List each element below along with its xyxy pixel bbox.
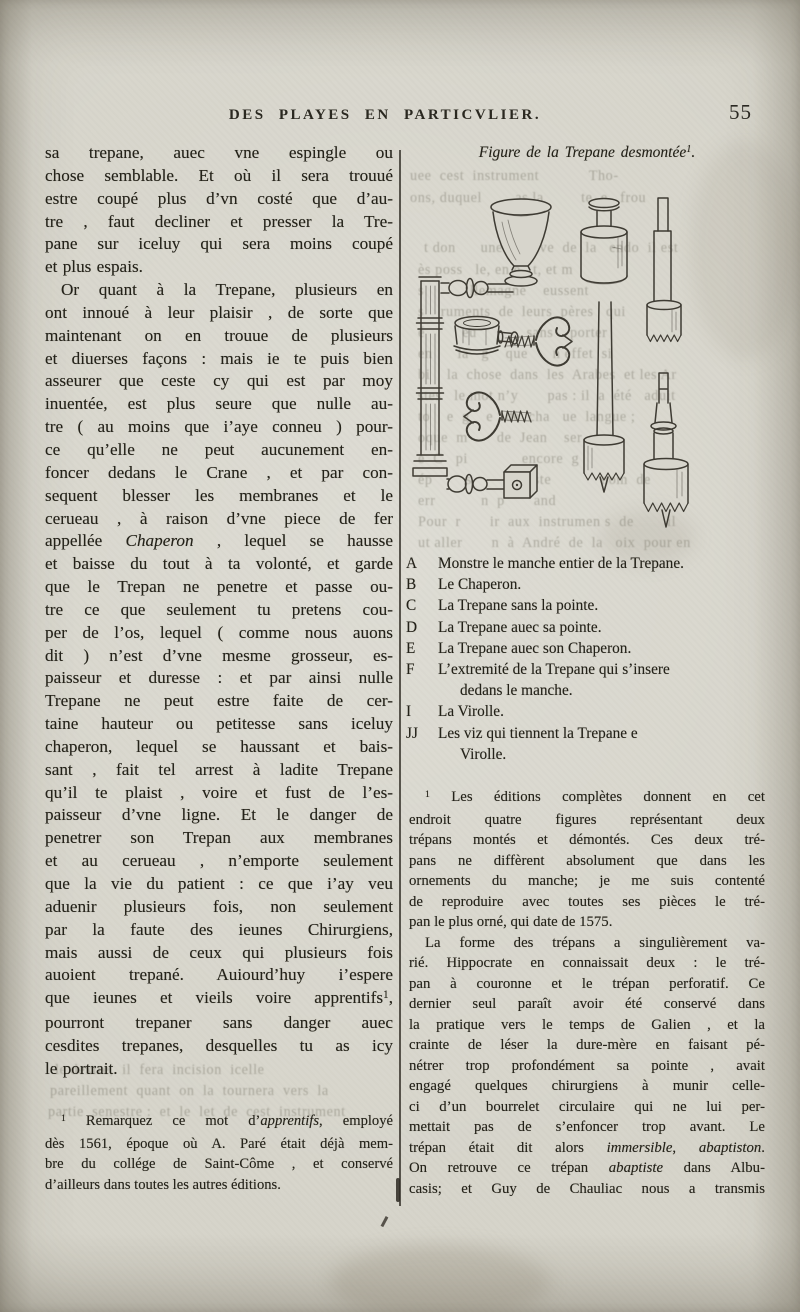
ink-mark bbox=[381, 1216, 388, 1227]
footnote-line: d’ailleurs dans toutes les autres éditio… bbox=[45, 1175, 393, 1196]
text-line: sequent blesser les membranes et le bbox=[45, 485, 393, 508]
legend-key: A bbox=[406, 553, 438, 574]
legend-item: F L’extremité de la Trepane qui s’insere… bbox=[406, 659, 768, 701]
figure-handle-knob bbox=[491, 199, 551, 286]
legend-key: JJ bbox=[406, 723, 438, 765]
text-line: pane sur iceluy qui sera moins coupé bbox=[45, 233, 393, 256]
text-line: chaperon, lequel se haussant et bais- bbox=[45, 736, 393, 759]
figure-trepan-with-chaperon bbox=[644, 373, 688, 527]
paper-stain bbox=[330, 1245, 550, 1312]
footnote-line: ci d’un bourrelet circulaire qui ne lui … bbox=[409, 1097, 765, 1118]
figure-crank-top-arm bbox=[441, 279, 513, 298]
text-line: ont innoué à leur plaisir , de sorte que bbox=[45, 302, 393, 325]
footnote-line: dès 1561, époque où A. Paré était déjà m… bbox=[45, 1134, 393, 1155]
footnote-line: pans ne diffèrent absolument que dans le… bbox=[409, 851, 765, 872]
legend-key: D bbox=[406, 617, 438, 638]
left-footnote: 1 Remarquez ce mot d’apprentifs, employé… bbox=[45, 1111, 393, 1195]
text-line: paisseur et duresse : et par ainsi nulle bbox=[45, 667, 393, 690]
legend-item: E La Trepane auec son Chaperon. bbox=[406, 638, 768, 659]
legend-item: JJ Les viz qui tiennent la Trepane e Vir… bbox=[406, 723, 768, 765]
text-line: aduenir plusieurs fois, non seulement bbox=[45, 896, 393, 919]
legend-key: F bbox=[406, 659, 438, 701]
figure-crank-bottom-arm bbox=[447, 475, 504, 494]
ink-blot bbox=[396, 1178, 400, 1202]
figure-screw-viz-2 bbox=[464, 392, 531, 440]
legend-item: A Monstre le manche entier de la Trepane… bbox=[406, 553, 768, 574]
text-line: tre ( au moins que i’aye conneu ) pour- bbox=[45, 416, 393, 439]
legend-text: La Virolle. bbox=[438, 701, 768, 722]
footnote-line: bre du collége de Saint-Côme , et conser… bbox=[45, 1154, 393, 1175]
legend-key: E bbox=[406, 638, 438, 659]
trepan-engraving bbox=[400, 168, 770, 548]
legend-item: B Le Chaperon. bbox=[406, 574, 768, 595]
text-line: que ieunes et vieils voire apprentifs1, bbox=[45, 987, 393, 1012]
footnote-line: endroit quatre figures représentant deux bbox=[409, 810, 765, 831]
legend-key: I bbox=[406, 701, 438, 722]
figure-trepan-with-point bbox=[584, 302, 624, 492]
text-line: auoient trepané. Auiourd’huy i’espere bbox=[45, 964, 393, 987]
legend-text: La Trepane auec son Chaperon. bbox=[438, 638, 768, 659]
legend-text: Les viz qui tiennent la Trepane e Viroll… bbox=[438, 723, 768, 765]
text-line: cerueau , à raison d’vne piece de fer bbox=[45, 508, 393, 531]
legend-key: C bbox=[406, 595, 438, 616]
text-line: paisseur d’vne ligne. Et le danger de bbox=[45, 804, 393, 827]
figure-socket-box bbox=[504, 465, 537, 498]
caption-footnote-ref: 1 bbox=[686, 144, 691, 155]
text-line: mais aussi de ceux qui plusieurs fois bbox=[45, 942, 393, 965]
right-footnote: 1 Les éditions complètes donnent en cete… bbox=[409, 787, 765, 1199]
text-line: et baisse du tout à ta volonté, et garde bbox=[45, 553, 393, 576]
footnote-line: 1 Les éditions complètes donnent en cet bbox=[409, 787, 765, 810]
text-line: le portrait. bbox=[45, 1058, 393, 1081]
legend-item: I La Virolle. bbox=[406, 701, 768, 722]
footnote-line: nétrer trop profondément sa pointe , ava… bbox=[409, 1056, 765, 1077]
legend-key: B bbox=[406, 574, 438, 595]
text-line: penetrer son Trepan aux membranes bbox=[45, 827, 393, 850]
running-header: DES PLAYES EN PARTICVLIER. bbox=[45, 107, 725, 124]
text-line: estre coupé plus d’vn costé que d’au- bbox=[45, 188, 393, 211]
legend-text: Monstre le manche entier de la Trepane. bbox=[438, 553, 768, 574]
legend-text: La Trepane sans la pointe. bbox=[438, 595, 768, 616]
legend-text: Le Chaperon. bbox=[438, 574, 768, 595]
text-line: appellée Chaperon , lequel se hausse bbox=[45, 530, 393, 553]
caption-period: . bbox=[691, 144, 695, 161]
text-line: foncer dedans le Crane , et par con- bbox=[45, 462, 393, 485]
footnote-line: dernier seul paraît avoir été conservé d… bbox=[409, 994, 765, 1015]
legend-item: C La Trepane sans la pointe. bbox=[406, 595, 768, 616]
left-column-text: sa trepane, auec vne espingle ouchose se… bbox=[45, 142, 393, 1081]
text-line: Or quant à la Trepane, plusieurs en bbox=[45, 279, 393, 302]
figure-legend: A Monstre le manche entier de la Trepane… bbox=[406, 553, 768, 765]
footnote-line: trépans montés et démontés. Ces deux tré… bbox=[409, 830, 765, 851]
legend-text: L’extremité de la Trepane qui s’insere d… bbox=[438, 659, 768, 701]
text-line: sant , fait tel arrest à ladite Trepane bbox=[45, 759, 393, 782]
footnote-line: ornements du manche; je me suis contenté bbox=[409, 871, 765, 892]
text-line: tre ce que seulement tu pretens cou- bbox=[45, 599, 393, 622]
figure-trepan-no-point bbox=[647, 198, 681, 342]
figure-virolle bbox=[454, 317, 518, 355]
figure-chaperon bbox=[581, 199, 627, 285]
legend-text: La Trepane auec sa pointe. bbox=[438, 617, 768, 638]
text-line: cesdites trepanes, desquelles tu as icy bbox=[45, 1035, 393, 1058]
footnote-line: rié. Hippocrate en connaissait deux : le… bbox=[409, 953, 765, 974]
figure-caption: Figure de la Trepane desmontée1. bbox=[409, 144, 765, 162]
text-line: ce qu’elle ne peut aucunement en- bbox=[45, 439, 393, 462]
figure-crank-column bbox=[413, 277, 447, 476]
text-line: asseurer que ceste cy qui est par moy bbox=[45, 370, 393, 393]
footnote-line: On retrouve ce trépan abaptiste dans Alb… bbox=[409, 1158, 765, 1179]
text-line: Trepane ne peut estre faite de cer- bbox=[45, 690, 393, 713]
text-line: dit ) n’est d’vne mesme grosseur, es- bbox=[45, 645, 393, 668]
page-number: 55 bbox=[729, 100, 752, 125]
text-line: que la vie du patient : ce que i’ay veu bbox=[45, 873, 393, 896]
footnote-line: la pratique vers le temps de Galien , et… bbox=[409, 1015, 765, 1036]
footnote-line: pan le plus orné, qui date de 1575. bbox=[409, 912, 765, 933]
footnote-line: trépan était dit alors immersible, abapt… bbox=[409, 1138, 765, 1159]
bleedthrough-text: pareillement quant on la tournera vers l… bbox=[50, 1083, 395, 1100]
text-line: chose semblable. Et où il sera trouué bbox=[45, 165, 393, 188]
text-line: inuentée, est plus seure que nulle au- bbox=[45, 393, 393, 416]
text-line: pourront trepaner sans danger auec bbox=[45, 1012, 393, 1035]
text-line: qu’il te plaist , voire et fust de l’es- bbox=[45, 782, 393, 805]
caption-text: Figure de la Trepane desmontée bbox=[479, 144, 686, 161]
text-line: et au cerueau , n’emporte seulement bbox=[45, 850, 393, 873]
text-line: per de l’os, lequel ( comme nous auons bbox=[45, 622, 393, 645]
footnote-line: de reproduire avec toutes ses pièces le … bbox=[409, 892, 765, 913]
text-line: et plus espais. bbox=[45, 256, 393, 279]
footnote-line: La forme des trépans a singulièrement va… bbox=[409, 933, 765, 954]
legend-item: D La Trepane auec sa pointe. bbox=[406, 617, 768, 638]
footnote-line: engagé quelques chirurgiens à munir cell… bbox=[409, 1076, 765, 1097]
scanned-book-page: uee cest instrument Tho-ons, duquel as l… bbox=[0, 0, 800, 1312]
text-line: sa trepane, auec vne espingle ou bbox=[45, 142, 393, 165]
trepan-figure-svg bbox=[400, 168, 770, 548]
text-line: taine hauteur ou petitesse sans iceluy bbox=[45, 713, 393, 736]
text-line: tre , faut decliner et presser la Tre- bbox=[45, 211, 393, 234]
footnote-line: mettait pas de s’enfoncer trop avant. Le bbox=[409, 1117, 765, 1138]
footnote-line: pan à couronne et le trépan perforatif. … bbox=[409, 974, 765, 995]
footnote-line: casis; et Guy de Chauliac nous a transmi… bbox=[409, 1179, 765, 1200]
text-line: maintenant on en trouue de plusieurs bbox=[45, 325, 393, 348]
text-line: et diuerses façons : mais ie te puis bie… bbox=[45, 348, 393, 371]
text-line: par la faute des ieunes Chirurgiens, bbox=[45, 919, 393, 942]
footnote-line: crainte de léser la dure-mère en faisant… bbox=[409, 1035, 765, 1056]
text-line: que le Trepan ne penetre et passe ou- bbox=[45, 576, 393, 599]
footnote-line: 1 Remarquez ce mot d’apprentifs, employé bbox=[45, 1111, 393, 1134]
